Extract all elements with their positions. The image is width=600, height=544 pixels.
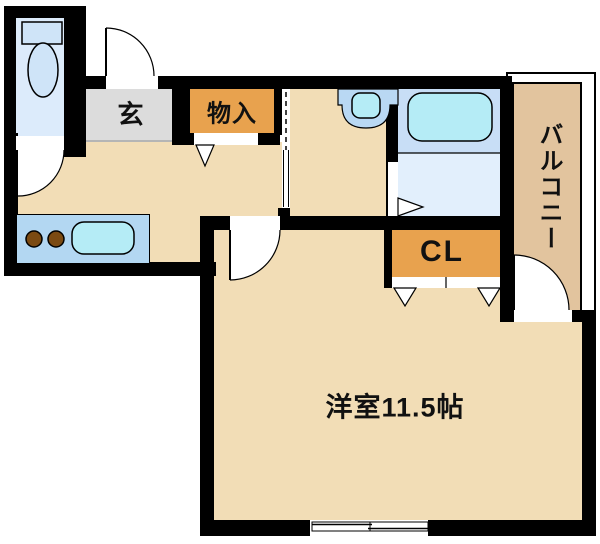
room-label-entrance: 玄: [117, 95, 144, 132]
room-label-balcony: バルコニー: [531, 122, 566, 252]
wall: [500, 76, 512, 322]
wall: [200, 216, 214, 536]
main-room-floor-right: [500, 322, 582, 522]
room-label-closet: CL: [420, 235, 464, 269]
wall: [4, 262, 216, 276]
wall: [384, 216, 392, 288]
balcony-door-opening: [514, 310, 572, 322]
bath-door-opening: [388, 162, 398, 216]
closet-door-track: [392, 277, 500, 288]
bathtub-zone-floor: [398, 89, 502, 153]
entrance-door-opening: [106, 76, 158, 89]
window-opening: [310, 520, 428, 536]
toilet-room-floor: [16, 18, 64, 136]
storage-door-track: [194, 133, 258, 145]
main-room-door-opening: [230, 216, 280, 230]
room-label-storage: 物入: [207, 94, 257, 129]
washroom-floor: [290, 89, 386, 218]
sliding-door-track: [282, 89, 290, 208]
toilet-door-opening: [16, 136, 64, 150]
wall: [64, 133, 86, 157]
wall: [582, 310, 596, 536]
wall: [274, 89, 282, 135]
entrance-door-swing-icon: [106, 28, 154, 76]
room-label-main-room: 洋室11.5帖: [325, 386, 464, 425]
floorplan: 玄 物入 CL 洋室11.5帖 バルコニー: [0, 0, 600, 544]
kitchen-counter: [16, 214, 150, 264]
bathroom-floor: [398, 153, 502, 218]
